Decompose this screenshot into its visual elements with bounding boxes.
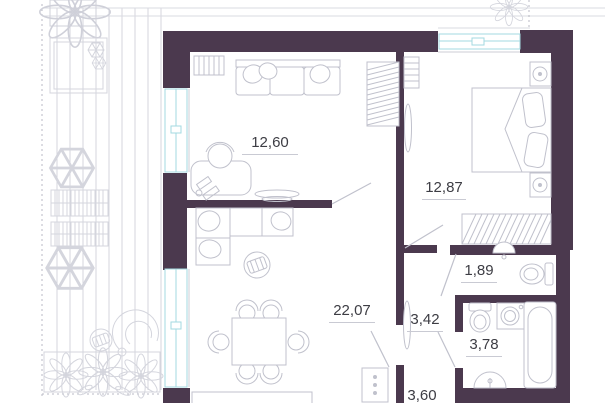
wall-segment <box>455 388 570 403</box>
flower-bed <box>44 348 163 398</box>
kitchen-counter <box>192 392 312 403</box>
wall-segment <box>551 53 573 250</box>
planter-box <box>50 38 107 93</box>
floor-plan-drawing <box>0 0 605 403</box>
bath-sink <box>474 372 506 388</box>
sun-lounger <box>51 190 108 216</box>
washing-machine <box>497 303 525 329</box>
wc-sink <box>493 242 515 259</box>
wall-segment <box>556 250 570 390</box>
wardrobe <box>367 62 399 126</box>
wall-segment <box>182 200 332 208</box>
wall-segment <box>455 368 463 388</box>
parasol-icon <box>50 149 93 187</box>
wall-segment <box>163 173 187 270</box>
wall-segment <box>163 388 190 403</box>
dining-chair <box>288 331 309 353</box>
sun-lounger <box>51 222 108 246</box>
room-a-furniture <box>191 56 399 202</box>
door-swing-bathroom <box>438 332 455 367</box>
area-label-bathroom: 3,78 <box>466 337 502 357</box>
door-swing-bedroom <box>405 225 443 248</box>
radiator <box>404 57 419 88</box>
area-label-living-room: 22,07 <box>329 303 375 323</box>
double-bed <box>472 88 551 172</box>
window-left-lower <box>165 269 187 387</box>
wardrobe <box>462 214 551 244</box>
wall-segment <box>163 31 190 88</box>
wall-segment <box>163 31 438 52</box>
nightstand <box>530 62 551 86</box>
window-left-upper <box>165 89 187 172</box>
round-table <box>255 190 299 202</box>
balcony-edge-lines <box>42 8 605 28</box>
area-label-entry: 3,60 <box>402 388 442 403</box>
area-label-bedroom: 12,87 <box>422 180 466 200</box>
plant-top-right <box>490 0 527 26</box>
toilet <box>469 303 491 332</box>
pillow <box>522 92 547 128</box>
radiator <box>194 56 224 75</box>
doors <box>332 183 456 367</box>
door-swing-room-a <box>332 183 371 204</box>
nightstand <box>530 173 551 197</box>
bedroom-furniture <box>404 57 551 244</box>
wall-segment <box>455 295 463 332</box>
wall-segment <box>520 30 573 53</box>
dining-chair <box>260 363 282 384</box>
area-label-room-a: 12,60 <box>242 135 298 155</box>
desk-chair <box>208 144 232 168</box>
hall-cabinet <box>362 368 388 402</box>
hex-plant-icon <box>92 57 106 69</box>
dining-chair <box>236 363 258 384</box>
dining-chair <box>208 331 229 353</box>
bathtub <box>524 302 556 388</box>
window-bedroom-top <box>439 34 520 49</box>
area-label-hallway: 3,42 <box>407 312 443 332</box>
door-swing-living <box>371 331 389 367</box>
sofa <box>236 60 340 95</box>
corner-sofa <box>196 208 294 265</box>
pouf <box>244 252 270 278</box>
mirror <box>405 104 412 152</box>
area-label-wc: 1,89 <box>461 263 497 283</box>
toilet <box>520 263 553 285</box>
dining-table <box>208 300 309 384</box>
floor-plan-canvas: 12,60 12,87 22,07 3,42 1,89 3,78 3,60 <box>0 0 605 403</box>
door-swing-wc <box>441 254 456 296</box>
